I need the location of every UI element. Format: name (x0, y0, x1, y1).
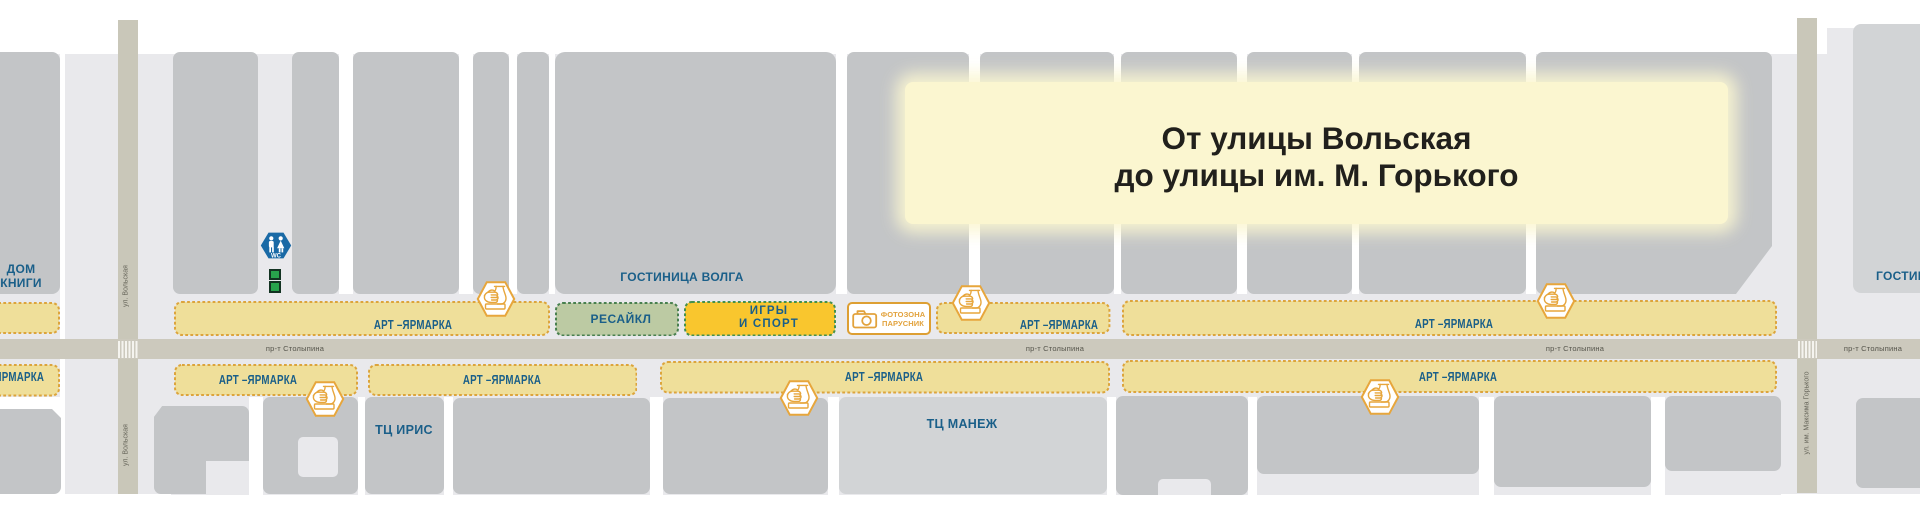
svg-text:WC: WC (271, 253, 282, 259)
